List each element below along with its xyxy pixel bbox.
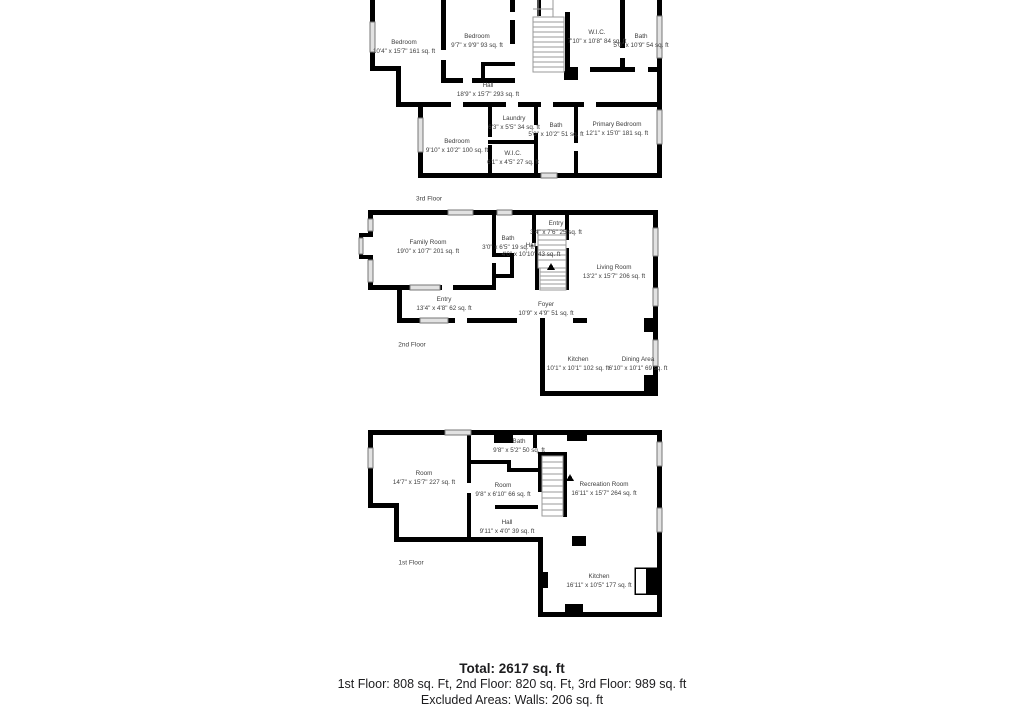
- room-area: 161 sq. ft: [409, 48, 435, 55]
- room-label-bedroom-1: Bedroom 10'4" x 15'7" 161 sq. ft: [373, 38, 435, 56]
- room-label-kitchen-2nd: Kitchen 10'1" x 10'1" 102 sq. ft: [547, 355, 609, 373]
- room-area: 206 sq. ft: [619, 273, 645, 280]
- room-name: Dining Area: [609, 355, 668, 364]
- room-size: 5'0" x 10'2" 51 sq. ft: [528, 130, 583, 139]
- room-size: 13'4" x 4'8" 62 sq. ft: [416, 304, 471, 313]
- room-size: 10'9" x 4'9" 51 sq. ft: [518, 309, 573, 318]
- room-name: Room: [475, 481, 530, 490]
- room-size: 6'10" x 10'1" 69 sq. ft: [609, 364, 668, 373]
- room-dims: 18'9" x 15'7": [457, 91, 492, 98]
- room-name: Living Room: [583, 263, 645, 272]
- room-name: Bath: [493, 437, 545, 446]
- room-dims: 9'11" x 4'0": [480, 528, 511, 535]
- room-label-recreation-room: Recreation Room 16'11" x 15'7" 264 sq. f…: [571, 480, 636, 498]
- room-dims: 10'4" x 15'7": [373, 48, 408, 55]
- room-name: Bedroom: [426, 137, 488, 146]
- room-dims: 16'11" x 15'7": [571, 490, 609, 497]
- summary-floor-breakdown: 1st Floor: 808 sq. Ft, 2nd Floor: 820 sq…: [0, 677, 1024, 693]
- room-area: 27 sq. ft: [516, 159, 538, 166]
- room-area: 100 sq. ft: [462, 147, 488, 154]
- room-dims: 10'9" x 4'9": [518, 310, 549, 317]
- room-name: Kitchen: [547, 355, 609, 364]
- room-name: Entry: [530, 219, 582, 228]
- room-area: 43 sq. ft: [538, 251, 560, 258]
- room-label-foyer: Foyer 10'9" x 4'9" 51 sq. ft: [518, 300, 573, 318]
- room-dims: 9'7" x 9'9": [451, 42, 479, 49]
- room-name: Bath: [613, 32, 668, 41]
- room-label-bath-mid: Bath 5'0" x 10'2" 51 sq. ft: [528, 121, 583, 139]
- room-label-entry-lower: Entry 13'4" x 4'8" 62 sq. ft: [416, 295, 471, 313]
- room-label-family-room: Family Room 19'0" x 10'7" 201 sq. ft: [397, 238, 459, 256]
- room-dims: 9'8" x 5'2": [493, 447, 521, 454]
- room-dims: 16'11" x 10'5": [566, 582, 604, 589]
- room-name: Bedroom: [451, 32, 503, 41]
- room-name: Bath: [528, 121, 583, 130]
- room-dims: 6'10" x 10'1": [609, 365, 644, 372]
- floor-plan-1st-stairs: [542, 456, 574, 516]
- room-size: 18'9" x 15'7" 293 sq. ft: [457, 90, 519, 99]
- room-label-living-room: Living Room 13'2" x 15'7" 206 sq. ft: [583, 263, 645, 281]
- room-name: Kitchen: [566, 572, 631, 581]
- room-label-hall-1st: Hall 9'11" x 4'0" 39 sq. ft: [480, 518, 535, 536]
- room-dims: 7'10" x 10'8": [568, 38, 603, 45]
- floor-plan-2nd-stairs: [538, 230, 566, 290]
- room-label-kitchen-1st: Kitchen 16'11" x 10'5" 177 sq. ft: [566, 572, 631, 590]
- room-size: 9'11" x 4'0" 39 sq. ft: [480, 527, 535, 536]
- room-area: 69 sq. ft: [645, 365, 667, 372]
- room-name: Hall: [457, 81, 519, 90]
- room-size: 5'0" x 10'9" 54 sq. ft: [613, 41, 668, 50]
- room-size: 4'0" x 10'10" 43 sq. ft: [502, 250, 561, 259]
- room-label-hall-3rd: Hall 18'9" x 15'7" 293 sq. ft: [457, 81, 519, 99]
- room-name: Recreation Room: [571, 480, 636, 489]
- summary-excluded-areas: Excluded Areas: Walls: 206 sq. ft: [0, 693, 1024, 709]
- room-name: Room: [393, 469, 455, 478]
- room-size: 6'1" x 4'5" 27 sq. ft: [487, 158, 539, 167]
- room-size: 9'8" x 6'10" 66 sq. ft: [475, 490, 530, 499]
- room-label-hall-2nd: Hall 4'0" x 10'10" 43 sq. ft: [502, 241, 561, 259]
- room-name: Bedroom: [373, 38, 435, 47]
- room-name: Primary Bedroom: [586, 120, 648, 129]
- room-size: 10'1" x 10'1" 102 sq. ft: [547, 364, 609, 373]
- room-label-bath-1st: Bath 9'8" x 5'2" 50 sq. ft: [493, 437, 545, 455]
- room-name: Hall: [480, 518, 535, 527]
- room-size: 13'2" x 15'7" 206 sq. ft: [583, 272, 645, 281]
- room-name: Entry: [416, 295, 471, 304]
- room-label-bedroom-3: Bedroom 9'10" x 10'2" 100 sq. ft: [426, 137, 488, 155]
- summary-total: Total: 2617 sq. ft: [0, 661, 1024, 677]
- room-label-bedroom-2: Bedroom 9'7" x 9'9" 93 sq. ft: [451, 32, 503, 50]
- room-size: 19'0" x 10'7" 201 sq. ft: [397, 247, 459, 256]
- room-dims: 9'10" x 10'2": [426, 147, 461, 154]
- room-dims: 5'0" x 10'9": [613, 42, 644, 49]
- room-label-dining-area: Dining Area 6'10" x 10'1" 69 sq. ft: [609, 355, 668, 373]
- room-label-room-mid: Room 9'8" x 6'10" 66 sq. ft: [475, 481, 530, 499]
- room-dims: 5'0" x 10'2": [528, 131, 559, 138]
- room-size: 14'7" x 15'7" 227 sq. ft: [393, 478, 455, 487]
- room-area: 264 sq. ft: [611, 490, 637, 497]
- floor-plan-3rd-stairs: [533, 0, 564, 72]
- room-area: 54 sq. ft: [646, 42, 668, 49]
- room-size: 3'4" x 7'6" 25 sq. ft: [530, 228, 582, 237]
- room-area: 177 sq. ft: [606, 582, 632, 589]
- floor-plan-1st-fixtures: [635, 568, 659, 594]
- room-size: 9'10" x 10'2" 100 sq. ft: [426, 146, 488, 155]
- room-area: 66 sq. ft: [508, 491, 530, 498]
- floor-plan-drawing: [0, 0, 1024, 720]
- room-area: 39 sq. ft: [512, 528, 534, 535]
- room-area: 62 sq. ft: [449, 305, 471, 312]
- room-label-bath-top: Bath 5'0" x 10'9" 54 sq. ft: [613, 32, 668, 50]
- room-dims: 9'8" x 6'10": [475, 491, 506, 498]
- room-size: 10'4" x 15'7" 161 sq. ft: [373, 47, 435, 56]
- floor-plan-page: Bedroom 10'4" x 15'7" 161 sq. ft Bedroom…: [0, 0, 1024, 720]
- room-size: 16'11" x 15'7" 264 sq. ft: [571, 489, 636, 498]
- room-dims: 12'1" x 15'0": [586, 130, 621, 137]
- room-area: 181 sq. ft: [622, 130, 648, 137]
- floor-caption-1st: 1st Floor: [398, 560, 423, 567]
- room-dims: 6'1" x 4'5": [487, 159, 515, 166]
- room-area: 51 sq. ft: [551, 310, 573, 317]
- room-dims: 10'1" x 10'1": [547, 365, 582, 372]
- room-area: 50 sq. ft: [522, 447, 544, 454]
- room-label-room-left: Room 14'7" x 15'7" 227 sq. ft: [393, 469, 455, 487]
- room-size: 16'11" x 10'5" 177 sq. ft: [566, 581, 631, 590]
- room-size: 9'8" x 5'2" 50 sq. ft: [493, 446, 545, 455]
- room-dims: 19'0" x 10'7": [397, 248, 432, 255]
- floor-caption-2nd: 2nd Floor: [398, 342, 425, 349]
- room-dims: 6'3" x 5'5": [488, 124, 516, 131]
- room-area: 25 sq. ft: [559, 229, 581, 236]
- floor-caption-3rd: 3rd Floor: [416, 196, 442, 203]
- room-name: Family Room: [397, 238, 459, 247]
- room-area: 102 sq. ft: [583, 365, 609, 372]
- room-label-primary-bedroom: Primary Bedroom 12'1" x 15'0" 181 sq. ft: [586, 120, 648, 138]
- room-dims: 4'0" x 10'10": [502, 251, 537, 258]
- room-area: 293 sq. ft: [493, 91, 519, 98]
- room-dims: 13'2" x 15'7": [583, 273, 618, 280]
- room-area: 227 sq. ft: [429, 479, 455, 486]
- room-name: Hall: [502, 241, 561, 250]
- area-summary: Total: 2617 sq. ft 1st Floor: 808 sq. Ft…: [0, 661, 1024, 708]
- room-dims: 3'4" x 7'6": [530, 229, 558, 236]
- room-dims: 13'4" x 4'8": [416, 305, 447, 312]
- room-size: 12'1" x 15'0" 181 sq. ft: [586, 129, 648, 138]
- room-area: 93 sq. ft: [480, 42, 502, 49]
- room-dims: 14'7" x 15'7": [393, 479, 428, 486]
- room-area: 201 sq. ft: [433, 248, 459, 255]
- room-area: 51 sq. ft: [561, 131, 583, 138]
- room-label-wic-bottom: W.I.C. 6'1" x 4'5" 27 sq. ft: [487, 149, 539, 167]
- room-name: W.I.C.: [487, 149, 539, 158]
- room-label-entry-upper: Entry 3'4" x 7'6" 25 sq. ft: [530, 219, 582, 237]
- room-size: 9'7" x 9'9" 93 sq. ft: [451, 41, 503, 50]
- room-name: Foyer: [518, 300, 573, 309]
